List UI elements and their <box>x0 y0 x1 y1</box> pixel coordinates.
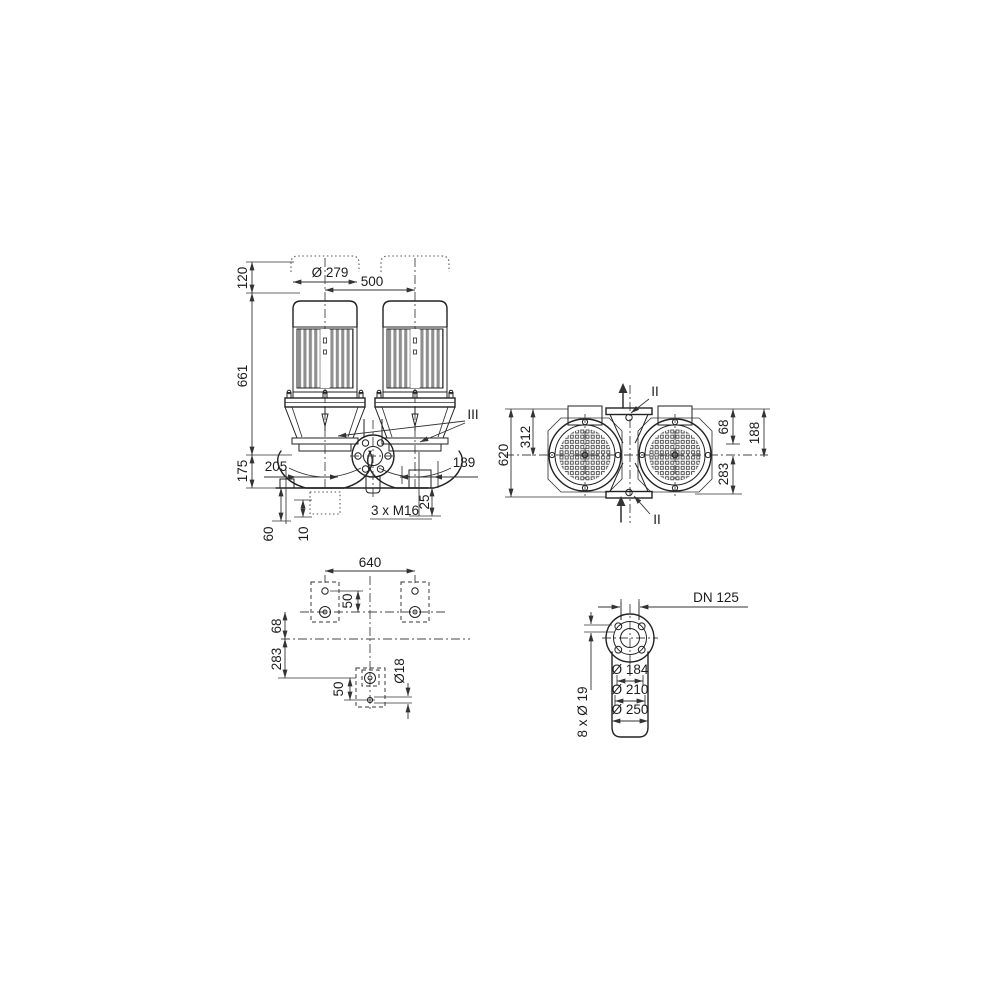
right-foot <box>409 470 431 488</box>
dim-height-label: 661 <box>235 365 250 388</box>
dim-foundation-axis-offset-label: 68 <box>269 618 284 633</box>
dim-raised-face-label: Ø 184 <box>612 662 649 677</box>
flange-view: DN 125 Ø 184 Ø 210 Ø 250 8 x Ø 19 <box>575 590 748 738</box>
dim-motor-diameter-label: Ø 279 <box>312 265 349 280</box>
dim-edge-to-axis-label: 312 <box>518 426 533 449</box>
dim-lower-offset-label: 283 <box>716 463 731 486</box>
dim-anchor-thread-label: 3 x M16 <box>371 503 419 518</box>
anchor-pad-bottom <box>356 668 385 707</box>
dim-thread-depth-label: 25 <box>417 494 432 509</box>
right-fan-cover <box>638 406 712 496</box>
dim-motor-spacing-label: 500 <box>361 274 384 289</box>
section-leader-bottom <box>634 496 650 514</box>
dim-hole-offset-upper-label: 50 <box>340 593 355 608</box>
dim-overall-width-label: 620 <box>496 444 511 467</box>
dim-bolt-holes-label: 8 x Ø 19 <box>575 686 590 737</box>
dim-nominal-bore-label: DN 125 <box>693 590 739 605</box>
dim-hole-diameter-label: Ø18 <box>392 658 407 684</box>
dim-outer-diameter-label: Ø 250 <box>612 702 649 717</box>
left-fan-cover <box>548 406 622 496</box>
dim-hole-offset-lower-label: 50 <box>331 681 346 696</box>
dim-offset-left-label: 205 <box>265 459 288 474</box>
plan-view: 620 312 68 188 283 II II <box>496 383 770 527</box>
left-foot <box>280 479 294 488</box>
dim-bolt-circle-label: Ø 210 <box>612 682 649 697</box>
grout-pocket-outline <box>310 492 340 514</box>
section-label-II-bottom: II <box>653 512 661 527</box>
flow-arrow-top <box>619 383 628 408</box>
section-leader-top <box>631 399 649 413</box>
anchor-pad-top-left <box>311 582 339 622</box>
dim-grout-label: 10 <box>296 526 311 541</box>
dim-clearance-label: 120 <box>235 267 250 290</box>
dim-bolt-span-label: 640 <box>359 555 382 570</box>
section-label-III: III <box>467 407 478 422</box>
foundation-view: 640 50 68 283 50 Ø18 <box>269 555 470 719</box>
dimensional-drawing: 120 Ø 279 500 661 175 205 189 3 x M16 25… <box>0 0 1000 1000</box>
section-label-II-top: II <box>651 384 659 399</box>
dim-edge-offset-label: 188 <box>747 422 762 445</box>
dim-axis-offset-label: 68 <box>716 419 731 434</box>
drawing-canvas: 120 Ø 279 500 661 175 205 189 3 x M16 25… <box>0 0 1000 1000</box>
flow-arrow-bottom <box>617 496 626 522</box>
dim-offset-right-label: 189 <box>453 455 476 470</box>
dim-base-depth-label: 60 <box>261 526 276 541</box>
dim-foundation-lower-offset-label: 283 <box>269 648 284 671</box>
seal-leader-lines <box>338 421 465 442</box>
anchor-pad-top-right <box>401 582 429 622</box>
dim-port-axis-height-label: 175 <box>235 460 250 483</box>
front-view: 120 Ø 279 500 661 175 205 189 3 x M16 25… <box>235 256 479 542</box>
